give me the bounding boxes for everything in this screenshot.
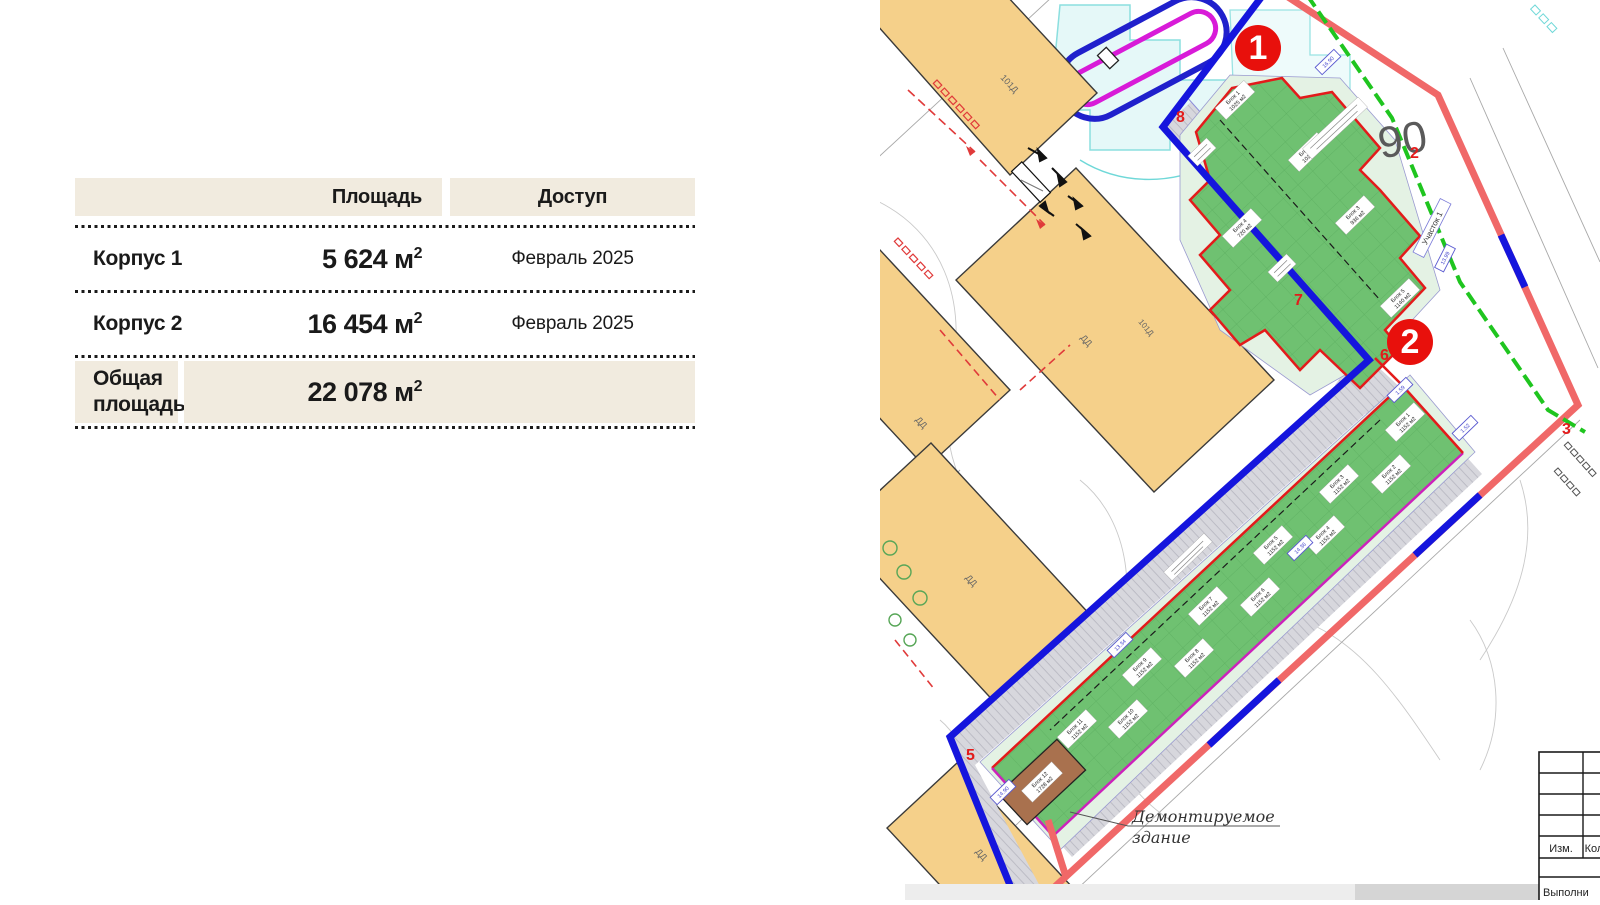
table-header: Площадь Доступ <box>75 178 695 216</box>
slide-page: { "table": { "header": { "area": "Площад… <box>0 0 1600 900</box>
marker-2[interactable]: 2 <box>1387 319 1433 365</box>
total-area-value: 22 078 м2 <box>184 377 422 408</box>
svg-text:здание: здание <box>1132 828 1191 847</box>
svg-text:Выполни: Выполни <box>1543 887 1589 899</box>
svg-text:3: 3 <box>1562 421 1571 438</box>
svg-text:5: 5 <box>966 747 975 764</box>
header-area: Площадь <box>75 178 442 216</box>
svg-text:8: 8 <box>1176 109 1185 126</box>
title-block: Изм. Кол Выполни <box>1539 752 1600 900</box>
site-plan-map[interactable]: 101Д ДД ДД ДД ДД 101Д <box>880 0 1600 900</box>
svg-text:2: 2 <box>1401 323 1420 361</box>
table-row: Корпус 2 16 454 м2 Февраль 2025 <box>75 293 695 355</box>
svg-text:7: 7 <box>1294 292 1303 309</box>
svg-text:6: 6 <box>1380 347 1389 364</box>
row-name: Корпус 1 <box>75 247 182 271</box>
row-area-value: 5 624 м2 <box>322 244 442 275</box>
marker-1[interactable]: 1 <box>1235 25 1281 71</box>
svg-text:Изм.: Изм. <box>1549 843 1573 855</box>
divider <box>75 355 695 358</box>
svg-text:Кол: Кол <box>1585 843 1600 855</box>
row-access: Февраль 2025 <box>450 313 695 335</box>
table-total-row: Общаяплощадь 22 078 м2 <box>75 361 695 423</box>
table-row: Корпус 1 5 624 м2 Февраль 2025 <box>75 228 695 290</box>
svg-text:2: 2 <box>1410 145 1419 162</box>
svg-text:Демонтируемое: Демонтируемое <box>1131 807 1275 826</box>
horizontal-scrollbar[interactable] <box>905 884 1600 900</box>
header-access: Доступ <box>450 178 695 216</box>
plot-number: 90 <box>1374 112 1431 169</box>
svg-text:1: 1 <box>1249 29 1268 67</box>
row-access: Февраль 2025 <box>450 248 695 270</box>
row-name: Корпус 2 <box>75 312 182 336</box>
divider <box>75 426 695 429</box>
row-area-value: 16 454 м2 <box>308 309 442 340</box>
total-name: Общаяплощадь <box>75 361 178 423</box>
areas-table: Площадь Доступ Корпус 1 5 624 м2 Февраль… <box>75 178 695 429</box>
